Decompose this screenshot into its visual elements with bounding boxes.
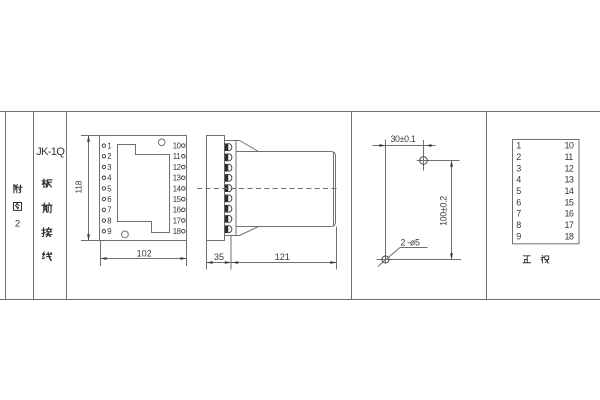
svg-text:10: 10 bbox=[565, 141, 574, 151]
svg-text:14: 14 bbox=[565, 186, 574, 196]
svg-text:JK-1Q: JK-1Q bbox=[36, 146, 65, 158]
svg-text:8: 8 bbox=[107, 216, 111, 225]
svg-text:1: 1 bbox=[516, 141, 521, 151]
svg-text:9: 9 bbox=[516, 231, 521, 241]
svg-text:1: 1 bbox=[107, 142, 111, 151]
svg-text:12: 12 bbox=[565, 163, 574, 173]
svg-text:15: 15 bbox=[565, 197, 574, 207]
svg-text:6: 6 bbox=[107, 195, 111, 204]
svg-text:35: 35 bbox=[214, 252, 224, 262]
svg-text:4: 4 bbox=[107, 174, 112, 183]
svg-text:118: 118 bbox=[74, 180, 84, 193]
svg-text:5: 5 bbox=[516, 186, 521, 196]
svg-text:9: 9 bbox=[107, 227, 111, 236]
svg-text:30±0.1: 30±0.1 bbox=[390, 134, 415, 144]
svg-text:3: 3 bbox=[107, 163, 111, 172]
svg-text:11: 11 bbox=[173, 152, 180, 161]
svg-text:2: 2 bbox=[15, 219, 20, 230]
svg-text:7: 7 bbox=[107, 206, 111, 215]
svg-text:5: 5 bbox=[107, 184, 112, 193]
svg-text:8: 8 bbox=[516, 220, 521, 230]
svg-text:14: 14 bbox=[173, 184, 182, 193]
svg-text:11: 11 bbox=[565, 152, 574, 162]
svg-text:102: 102 bbox=[137, 248, 152, 258]
svg-text:2 -ø5: 2 -ø5 bbox=[401, 238, 420, 248]
svg-text:17: 17 bbox=[565, 220, 574, 230]
svg-text:15: 15 bbox=[173, 195, 182, 204]
svg-text:3: 3 bbox=[516, 163, 521, 173]
svg-text:16: 16 bbox=[173, 206, 181, 215]
svg-text:4: 4 bbox=[516, 175, 521, 185]
svg-text:13: 13 bbox=[173, 174, 181, 183]
svg-text:18: 18 bbox=[565, 231, 574, 241]
svg-text:2: 2 bbox=[516, 152, 521, 162]
svg-text:121: 121 bbox=[275, 252, 290, 262]
svg-text:12: 12 bbox=[173, 163, 181, 172]
svg-text:13: 13 bbox=[565, 175, 574, 185]
svg-text:7: 7 bbox=[516, 209, 521, 219]
svg-text:16: 16 bbox=[565, 209, 574, 219]
svg-text:2: 2 bbox=[107, 152, 111, 161]
svg-text:10: 10 bbox=[173, 142, 182, 151]
svg-text:17: 17 bbox=[173, 216, 181, 225]
svg-text:100±0.2: 100±0.2 bbox=[439, 196, 449, 226]
svg-text:18: 18 bbox=[173, 227, 181, 236]
svg-text:6: 6 bbox=[516, 197, 521, 207]
